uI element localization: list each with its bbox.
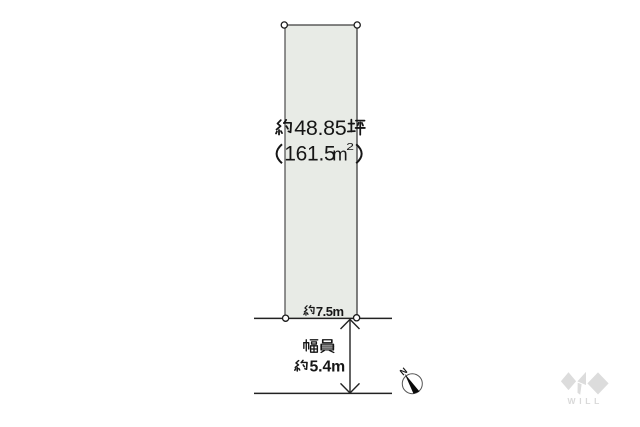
svg-text:5.4m: 5.4m — [310, 359, 346, 376]
svg-text:7.5m: 7.5m — [316, 304, 344, 319]
svg-text:48.85: 48.85 — [294, 116, 346, 140]
svg-text:WILL: WILL — [568, 396, 604, 406]
svg-text:2: 2 — [346, 141, 354, 153]
svg-text:161.5: 161.5 — [284, 143, 335, 166]
